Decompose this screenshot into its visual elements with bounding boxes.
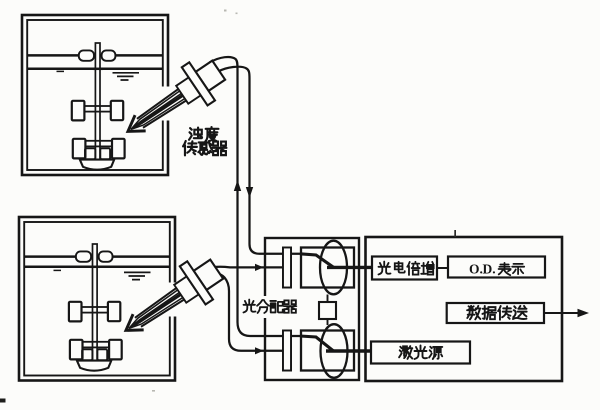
- svg-text:D.: D.: [483, 262, 496, 277]
- svg-text:O.: O.: [469, 262, 483, 277]
